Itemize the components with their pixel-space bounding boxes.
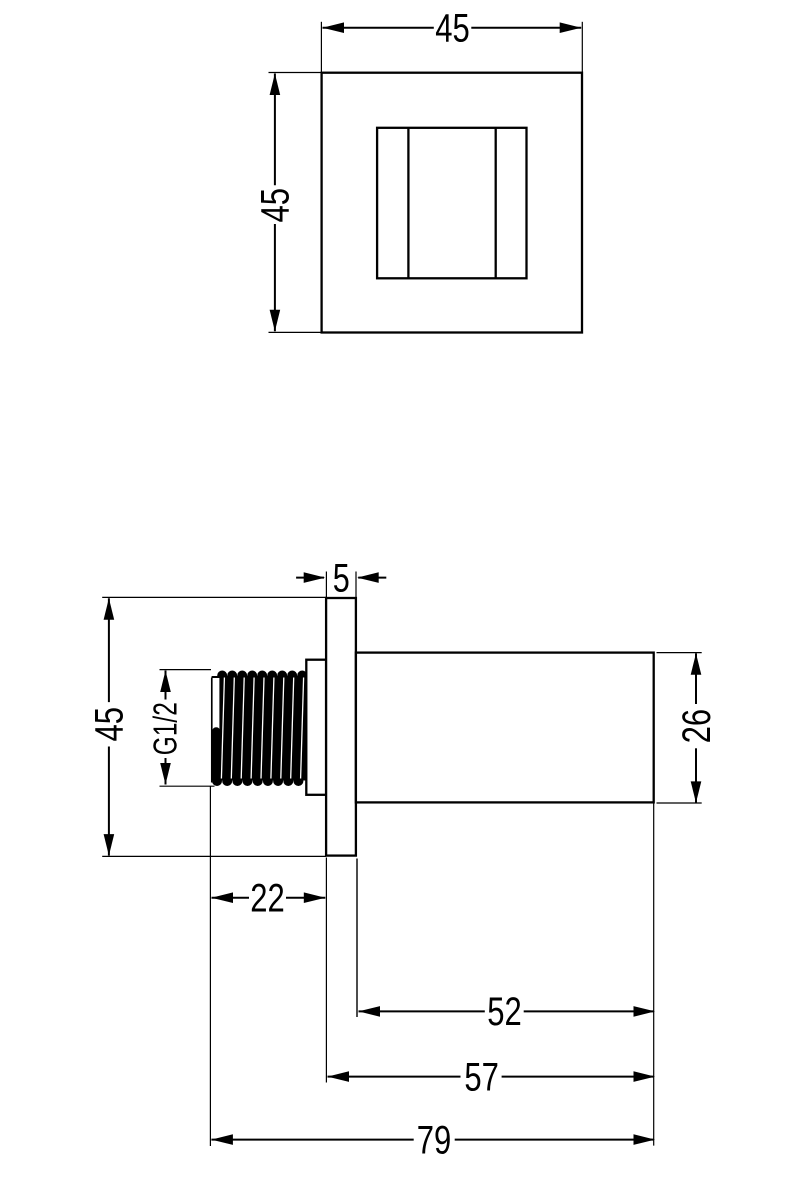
svg-text:52: 52 [487,990,522,1034]
svg-text:45: 45 [254,188,298,223]
svg-text:5: 5 [333,556,350,600]
svg-text:22: 22 [250,876,285,920]
svg-text:79: 79 [417,1118,452,1162]
svg-text:45: 45 [435,6,470,50]
svg-text:57: 57 [464,1055,499,1099]
svg-text:G1/2: G1/2 [147,702,184,755]
svg-text:45: 45 [88,707,132,742]
svg-text:26: 26 [675,709,719,744]
